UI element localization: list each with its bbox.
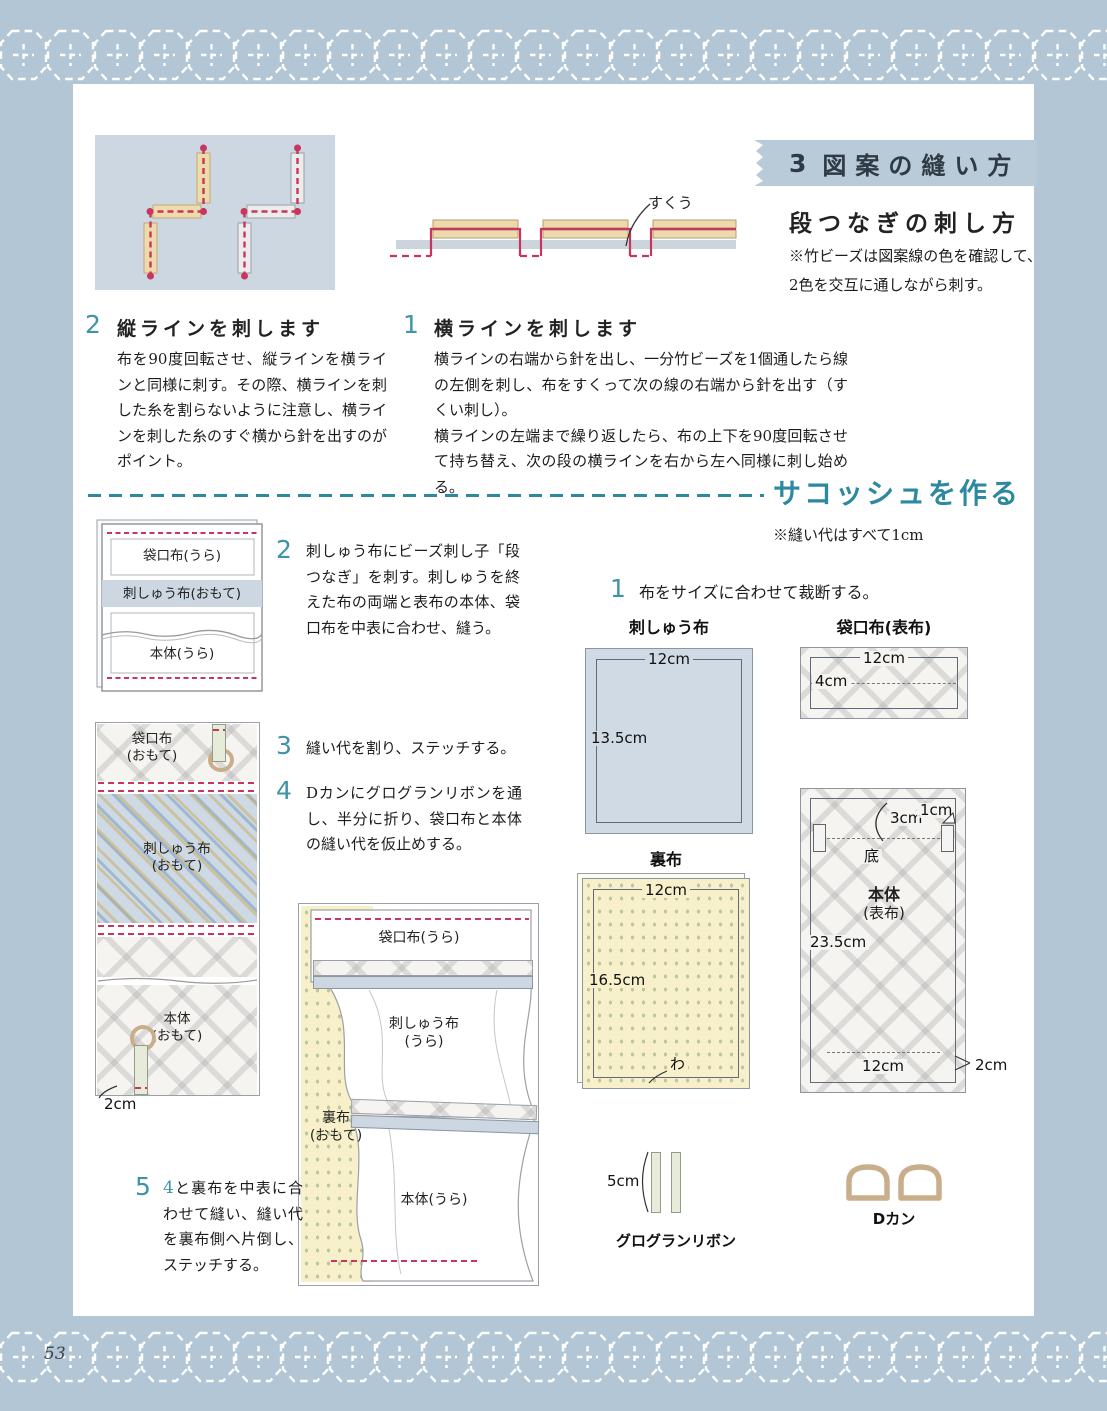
body-height-label: 23.5cm (807, 935, 869, 950)
sacoche-step5-text: 4と裏布を中表に合わせて縫い、縫い代を裏布側へ片倒し、ステッチする。 (163, 1176, 303, 1278)
sacoche-step1-number: 1 (610, 576, 626, 601)
body-title-1: 本体 (801, 885, 967, 905)
lining-fold-label: わ (667, 1057, 688, 1072)
stack3-top-label: 袋口布(うら) (339, 930, 499, 948)
sacoche-step5-number: 5 (135, 1174, 151, 1199)
stack3-seam-top (315, 918, 529, 920)
body-ribbon-tab-right (941, 825, 954, 852)
d-rings-icon (839, 1160, 949, 1204)
stack1-mid-label: 刺しゅう布(おもて) (102, 586, 262, 603)
bead-stitch-panel (95, 135, 335, 290)
stack-diagram-2: 袋口布 (おもて) 刺しゅう布 (おもて) 本体 (おもて) (95, 722, 260, 1096)
sacoche-step2-number: 2 (276, 537, 292, 562)
stack3-seam-bottom (331, 1260, 477, 1262)
section-divider (88, 494, 764, 497)
stack1-top-label: 袋口布(うら) (102, 548, 262, 565)
sacoche-heading: サコッシュを作る (773, 472, 1021, 512)
section-title: 図案の縫い方 (822, 146, 1020, 181)
seam-line-2a (98, 925, 257, 927)
page-number: 53 (44, 1344, 66, 1364)
book-page: { "page": {"number": "53"}, "colors": {"… (0, 0, 1107, 1411)
strip-blue-1 (313, 976, 533, 989)
corner-fold-mark (939, 811, 957, 825)
sacoche-step4-text: Dカンにグログランリボンを通し、半分に折り、袋口布と本体の縫い代を仮止めする。 (306, 781, 522, 858)
pocket-width-label: 12cm (860, 651, 908, 666)
body-fabric-upper (97, 937, 257, 977)
stack3-bottom-label: 本体(うら) (369, 1192, 499, 1210)
seam-line-1b (98, 790, 257, 792)
subsection-title: 段つなぎの刺し方 (789, 204, 1021, 238)
sacoche-step1-text: 布をサイズに合わせて裁断する。 (639, 579, 879, 603)
stack-diagram-3: 袋口布(うら) 刺しゅう布 (うら) 裏布 (おもて) 本体(うら) (298, 903, 539, 1286)
sacoche-step3-text: 縫い代を割り、ステッチする。 (306, 736, 546, 762)
tack-stitch-top (213, 729, 225, 731)
zigzag-edge (754, 140, 766, 186)
lining-height-label: 16.5cm (586, 973, 648, 988)
body-side-label: 2cm (975, 1058, 1007, 1073)
stack2-top-label: 袋口布 (おもて) (110, 731, 194, 765)
body-width-label: 12cm (859, 1059, 907, 1074)
step-body-tate: 布を90度回転させ、縦ラインを横ラインと同様に刺す。その際、横ラインを刺した糸を… (117, 347, 387, 475)
bead-note: ※竹ビーズは図案線の色を確認して、 2色を交互に通しながら刺す。 (789, 242, 1059, 299)
stack3-left-label: 裏布 (おもて) (301, 1110, 371, 1145)
stack3-mid-label: 刺しゅう布 (うら) (359, 1016, 489, 1051)
d-ring-label: Dカン (839, 1208, 949, 1229)
step-title-yoko: 横ラインを刺します (434, 314, 641, 341)
embroidery-cloth-title: 刺しゅう布 (585, 614, 753, 638)
lining-piece: 12cm 16.5cm わ (582, 878, 750, 1089)
dim-2cm-pointer-right (953, 1054, 975, 1072)
step-title-tate: 縦ラインを刺します (117, 314, 324, 341)
bead-staircase-diagram (95, 135, 335, 290)
ribbon-strip-2 (671, 1152, 681, 1213)
seam-line-2b (98, 933, 257, 935)
lining-piece-title: 裏布 (582, 846, 750, 870)
step-number-yoko: 1 (403, 312, 419, 337)
body-bottom-mark: 底 (861, 849, 882, 864)
seam-allowance-note: ※縫い代はすべて1cm (773, 524, 924, 545)
sukuu-label: すくう (648, 192, 693, 213)
ribbon-length-label: 5cm (607, 1174, 639, 1189)
stack2-2cm-label: 2cm (104, 1097, 136, 1112)
sashiko-border-bottom (0, 1326, 1107, 1388)
body-ribbon-tab-left (813, 824, 826, 852)
strip-lattice-1 (313, 960, 533, 976)
seam-line-1a (98, 782, 257, 784)
embroidery-height-label: 13.5cm (588, 731, 650, 746)
lining-width-label: 12cm (642, 883, 690, 898)
pocket-height-label: 4cm (812, 674, 850, 689)
sashiko-border-top (0, 24, 1107, 86)
pocket-piece: 12cm 4cm (800, 647, 968, 719)
embroidery-cloth-piece: 12cm 13.5cm (585, 648, 753, 834)
pocket-piece-title: 袋口布(表布) (800, 614, 968, 638)
stack1-bottom-label: 本体(うら) (102, 646, 262, 663)
stack-diagram-1: 袋口布(うら) 刺しゅう布(おもて) 本体(うら) (95, 518, 265, 693)
step-number-tate: 2 (85, 312, 101, 337)
sacoche-step5-ref: 4 (163, 1178, 174, 1198)
sacoche-step5-body: と裏布を中表に合わせて縫い、縫い代を裏布側へ片倒し、ステッチする。 (163, 1179, 303, 1274)
embroidery-width-label: 12cm (645, 652, 693, 667)
section-title-band: 3 図案の縫い方 (755, 140, 1037, 186)
stack2-mid-label: 刺しゅう布 (おもて) (97, 841, 257, 875)
sacoche-step4-number: 4 (276, 778, 292, 803)
ribbon-label: グログランリボン (601, 1230, 751, 1251)
stack2-bottom-label: 本体 (おもて) (97, 1011, 257, 1045)
tack-stitch-bottom (135, 1087, 147, 1089)
page-content: すくう 3 図案の縫い方 段つなぎの刺し方 ※竹ビーズは図案線の色を確認して、 … (73, 84, 1034, 1316)
body-title-2: (表布) (801, 904, 967, 923)
sacoche-step2-text: 刺しゅう布にビーズ刺し子「段つなぎ」を刺す。刺しゅうを終えた布の両端と表布の本体… (306, 539, 520, 641)
ribbon-strip-1 (651, 1152, 661, 1213)
sacoche-step3-number: 3 (276, 733, 292, 758)
body-piece: 3cm 1cm 底 本体 (表布) 23.5cm 12cm (800, 788, 966, 1093)
body-bottom-fold-line-bottom (827, 1052, 940, 1053)
fold-pointer-line (645, 1067, 669, 1085)
section-number: 3 (789, 149, 806, 178)
